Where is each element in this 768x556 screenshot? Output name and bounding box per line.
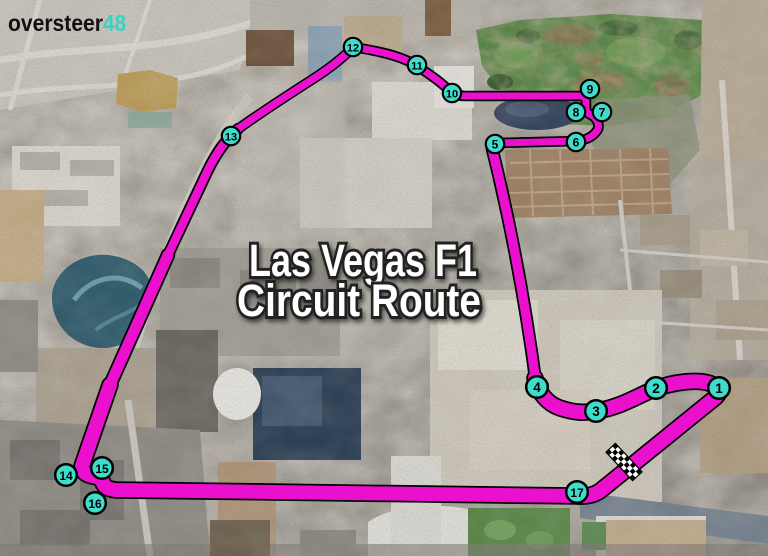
- svg-text:15: 15: [95, 462, 109, 476]
- svg-text:9: 9: [587, 83, 594, 97]
- svg-text:3: 3: [592, 404, 600, 419]
- svg-text:8: 8: [573, 106, 580, 120]
- svg-text:14: 14: [59, 469, 73, 483]
- svg-text:2: 2: [652, 381, 660, 396]
- svg-text:oversteer: oversteer: [8, 10, 103, 36]
- svg-text:4: 4: [533, 380, 541, 395]
- svg-text:48: 48: [103, 10, 126, 36]
- svg-text:10: 10: [446, 89, 458, 101]
- svg-text:Circuit Route: Circuit Route: [237, 275, 481, 326]
- svg-text:17: 17: [570, 486, 584, 500]
- svg-text:11: 11: [411, 61, 423, 73]
- svg-text:7: 7: [599, 106, 606, 120]
- svg-text:13: 13: [225, 132, 237, 144]
- svg-text:12: 12: [347, 43, 359, 55]
- svg-text:1: 1: [715, 381, 723, 396]
- svg-text:5: 5: [492, 138, 499, 152]
- svg-text:16: 16: [88, 497, 102, 511]
- svg-text:6: 6: [573, 136, 580, 150]
